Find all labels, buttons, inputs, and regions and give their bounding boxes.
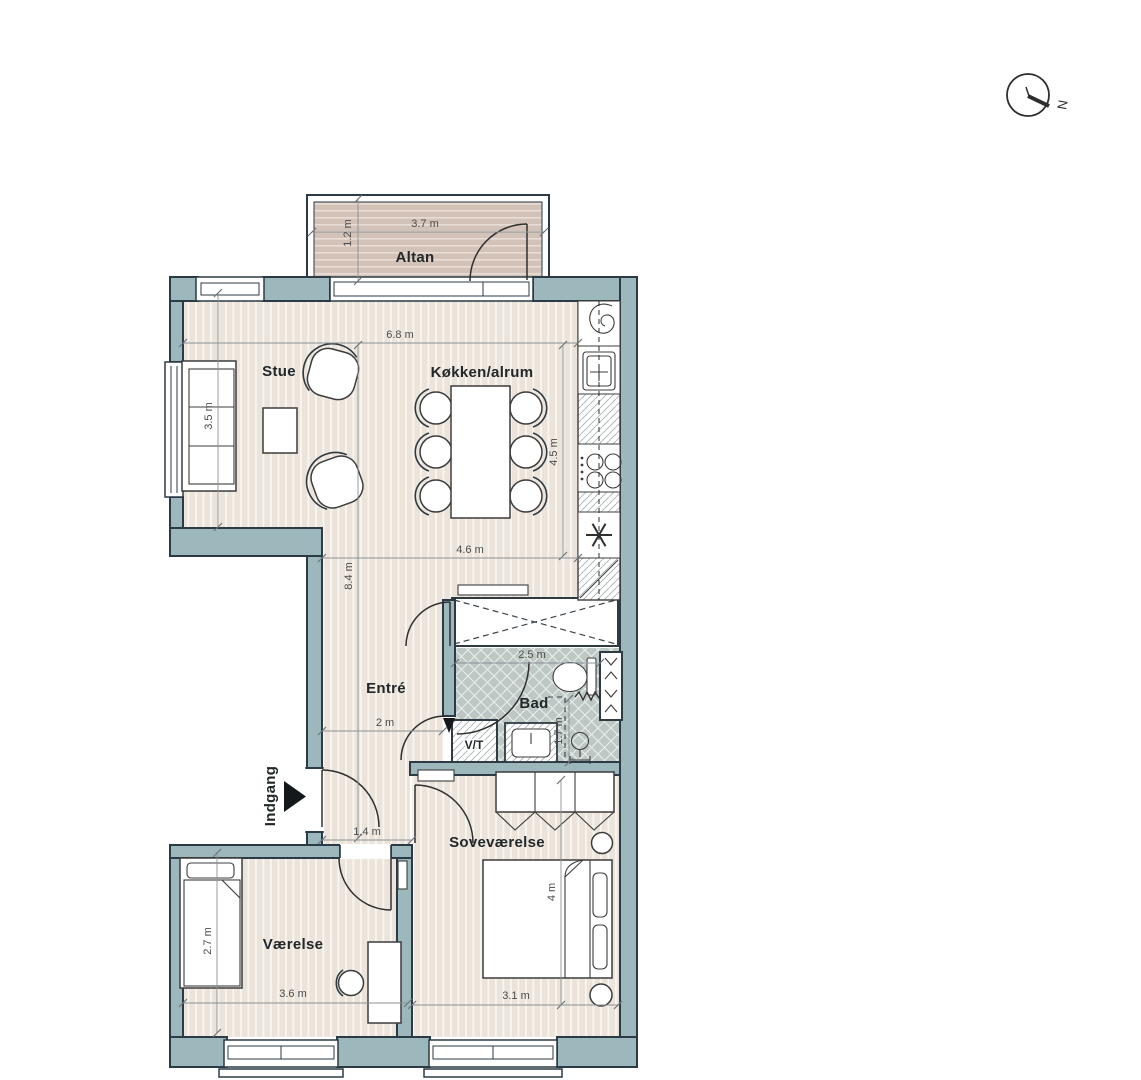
room-label-bad: Bad	[519, 695, 548, 712]
washer-dryer-label: V/T	[465, 738, 484, 752]
pillow	[593, 873, 607, 917]
wall-left	[170, 497, 183, 528]
single-bed	[180, 858, 242, 988]
dim-label: 6.8 m	[386, 329, 414, 341]
window-sill	[424, 1069, 562, 1077]
compass-north-label: N	[1054, 99, 1070, 111]
wall-segment	[170, 277, 198, 301]
wall-bottom	[557, 1037, 637, 1067]
knob-dot	[581, 471, 584, 474]
dim-label: 2.7 m	[202, 927, 214, 955]
dim-label: 2.5 m	[518, 649, 546, 661]
dim-label: 2 m	[376, 717, 394, 729]
entrance-arrow-icon	[284, 781, 306, 812]
dim-label: 1.2 m	[342, 219, 354, 247]
window-stue-top	[196, 277, 264, 301]
compass-needle-tail	[1026, 87, 1029, 96]
room-label-sove: Soveværelse	[449, 834, 545, 851]
wall-entre-left	[307, 556, 322, 768]
stool	[592, 833, 613, 854]
pillow	[593, 925, 607, 969]
double-bed	[483, 860, 612, 978]
knob-dot	[581, 478, 584, 481]
window-sill	[219, 1069, 343, 1077]
room-label-altan: Altan	[396, 249, 435, 266]
compass: N	[1007, 74, 1071, 116]
dim-label: 1.4 m	[353, 826, 381, 838]
dim-label: 1.7 m	[553, 717, 565, 745]
floor-plan-drawing: V/T	[0, 0, 1141, 1080]
dim-label: 4.5 m	[548, 438, 560, 466]
floor-plan: V/T	[0, 0, 1141, 1080]
dim-label: 8.4 m	[343, 562, 355, 590]
shaft	[600, 652, 622, 720]
knob-dot	[581, 457, 584, 460]
window-glass-doors	[330, 277, 533, 301]
wall-left	[170, 301, 183, 362]
entrance-marker: Indgang	[262, 766, 306, 826]
toilet-bowl	[553, 663, 587, 692]
stool	[590, 984, 612, 1006]
closet-shelf	[458, 585, 528, 595]
wall-vaerelse-top	[391, 845, 412, 858]
knob-dot	[581, 464, 584, 467]
desk	[368, 942, 401, 1023]
dining-table	[451, 386, 510, 518]
dim-label: 3.6 m	[279, 988, 307, 1000]
toilet-tank	[587, 658, 596, 695]
wall-vaerelse-top	[170, 845, 340, 858]
dim-label: 3.1 m	[502, 990, 530, 1002]
wall-stue-step	[170, 528, 322, 556]
console-shelf	[418, 770, 454, 781]
kitchen-counter	[578, 301, 621, 600]
wall-bad-left	[443, 600, 455, 716]
compass-needle-icon	[1028, 96, 1049, 106]
pillow	[187, 863, 234, 878]
room-label-entre: Entré	[366, 680, 406, 697]
wall-bottom	[170, 1037, 227, 1067]
room-label-vaerelse: Værelse	[263, 936, 323, 953]
dim-label: 3.7 m	[411, 218, 439, 230]
dim-label: 4.6 m	[456, 544, 484, 556]
coffee-table	[263, 408, 297, 453]
vaerelse-door-opening	[340, 844, 391, 859]
dim-label: 3.5 m	[203, 402, 215, 430]
window-stue-left	[165, 362, 183, 497]
room-label-stue: Stue	[262, 363, 296, 380]
wall-bottom	[337, 1037, 430, 1067]
dining-chairs-right	[510, 389, 547, 515]
dining-chairs-left	[415, 389, 452, 515]
dim-label: 4 m	[546, 883, 558, 901]
entrance-opening	[305, 769, 324, 831]
radiator	[398, 861, 407, 889]
wall-segment	[263, 277, 330, 301]
room-label-kokken: Køkken/alrum	[431, 364, 534, 381]
indgang-label: Indgang	[262, 766, 279, 826]
